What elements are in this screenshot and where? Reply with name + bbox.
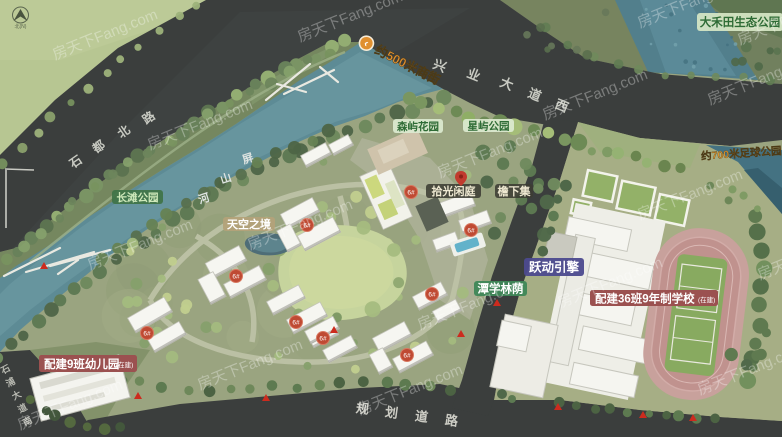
svg-text:(在建): (在建) [116,360,133,369]
svg-text:6#: 6# [428,292,436,299]
svg-text:檐下集: 檐下集 [498,184,532,198]
svg-text:配建36班9年制学校: 配建36班9年制学校 [595,292,695,306]
svg-text:拾光闲庭: 拾光闲庭 [432,184,476,198]
svg-text:6#: 6# [292,320,300,327]
svg-text:跃动引擎: 跃动引擎 [529,260,580,275]
svg-text:星屿公园: 星屿公园 [468,119,510,132]
svg-text:森屿花园: 森屿花园 [396,120,439,133]
svg-text:道: 道 [414,408,429,425]
svg-text:长滩公园: 长滩公园 [117,191,159,204]
svg-text:(在建): (在建) [698,295,715,304]
svg-text:北(N): 北(N) [15,23,27,30]
svg-text:6#: 6# [319,336,327,343]
svg-text:6#: 6# [467,228,475,235]
svg-text:天空之境: 天空之境 [227,217,271,231]
svg-text:6#: 6# [232,274,240,281]
svg-text:6#: 6# [143,331,151,338]
svg-text:6#: 6# [407,190,415,197]
svg-text:6#: 6# [403,353,411,360]
svg-text:配建9班幼儿园: 配建9班幼儿园 [44,357,119,371]
